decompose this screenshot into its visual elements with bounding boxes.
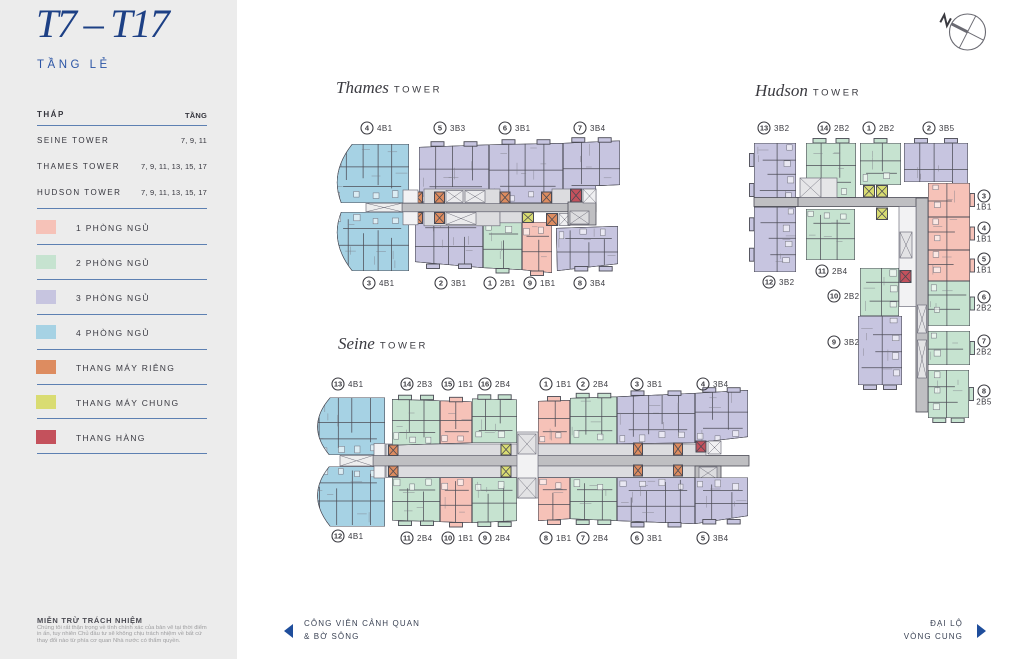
svg-text:ThamesTOWER: ThamesTOWER [336,78,442,97]
svg-text:1B1: 1B1 [976,266,992,275]
svg-text:4: 4 [365,124,370,133]
svg-text:3B2: 3B2 [844,338,860,347]
svg-text:2B4: 2B4 [832,267,848,276]
svg-text:2B2: 2B2 [844,292,860,301]
svg-text:14: 14 [820,124,829,133]
svg-text:1B1: 1B1 [458,380,474,389]
svg-text:11: 11 [818,267,826,276]
svg-text:2B2: 2B2 [976,348,992,357]
svg-text:4B1: 4B1 [348,380,364,389]
svg-text:2B2: 2B2 [976,304,992,313]
svg-text:3B4: 3B4 [713,380,729,389]
svg-text:3B2: 3B2 [774,124,790,133]
svg-text:6: 6 [635,534,639,543]
svg-text:16: 16 [481,380,489,389]
svg-text:2B2: 2B2 [879,124,895,133]
svg-text:6: 6 [503,124,507,133]
svg-text:1B1: 1B1 [540,279,556,288]
svg-text:3B1: 3B1 [647,380,663,389]
svg-text:1B1: 1B1 [976,235,992,244]
svg-text:2: 2 [581,380,585,389]
svg-text:1B1: 1B1 [556,380,572,389]
svg-text:8: 8 [982,387,986,396]
svg-text:1B1: 1B1 [556,534,572,543]
svg-text:13: 13 [334,380,342,389]
svg-text:3B1: 3B1 [647,534,663,543]
svg-text:4: 4 [982,224,987,233]
svg-text:2B4: 2B4 [593,534,609,543]
svg-text:4B1: 4B1 [379,279,395,288]
svg-text:3B4: 3B4 [590,279,606,288]
svg-text:9: 9 [528,279,532,288]
svg-text:12: 12 [765,278,773,287]
svg-text:6: 6 [982,293,986,302]
svg-text:1: 1 [544,380,548,389]
svg-text:7: 7 [982,337,986,346]
svg-text:11: 11 [403,534,411,543]
svg-text:9: 9 [832,338,836,347]
svg-text:7: 7 [581,534,585,543]
svg-text:14: 14 [403,380,412,389]
svg-text:2B4: 2B4 [495,380,511,389]
svg-text:10: 10 [830,292,838,301]
svg-text:15: 15 [444,380,452,389]
svg-text:1: 1 [488,279,492,288]
svg-text:3B1: 3B1 [515,124,531,133]
svg-text:3B4: 3B4 [713,534,729,543]
svg-text:3B2: 3B2 [779,278,795,287]
svg-text:4B1: 4B1 [377,124,393,133]
svg-text:8: 8 [544,534,548,543]
svg-text:2: 2 [439,279,443,288]
svg-text:7: 7 [578,124,582,133]
svg-text:5: 5 [982,255,986,264]
svg-text:3B5: 3B5 [939,124,955,133]
svg-text:4B1: 4B1 [348,532,364,541]
svg-text:2B3: 2B3 [417,380,433,389]
svg-text:3: 3 [635,380,639,389]
svg-text:12: 12 [334,532,342,541]
svg-text:2B2: 2B2 [834,124,850,133]
svg-text:1B1: 1B1 [976,203,992,212]
svg-text:3: 3 [982,192,986,201]
svg-text:3B1: 3B1 [451,279,467,288]
svg-text:2B5: 2B5 [976,398,992,407]
svg-text:3B3: 3B3 [450,124,466,133]
svg-text:1B1: 1B1 [458,534,474,543]
svg-text:5: 5 [701,534,705,543]
svg-text:9: 9 [483,534,487,543]
svg-text:2B4: 2B4 [593,380,609,389]
svg-text:10: 10 [444,534,452,543]
svg-text:2B1: 2B1 [500,279,516,288]
svg-text:HudsonTOWER: HudsonTOWER [754,81,861,100]
svg-text:2: 2 [927,124,931,133]
svg-text:13: 13 [760,124,768,133]
svg-text:SeineTOWER: SeineTOWER [338,334,428,353]
svg-text:3: 3 [367,279,371,288]
svg-text:2B4: 2B4 [495,534,511,543]
svg-text:5: 5 [438,124,442,133]
svg-text:4: 4 [701,380,706,389]
svg-text:2B4: 2B4 [417,534,433,543]
svg-text:8: 8 [578,279,582,288]
svg-text:3B4: 3B4 [590,124,606,133]
svg-text:1: 1 [867,124,871,133]
